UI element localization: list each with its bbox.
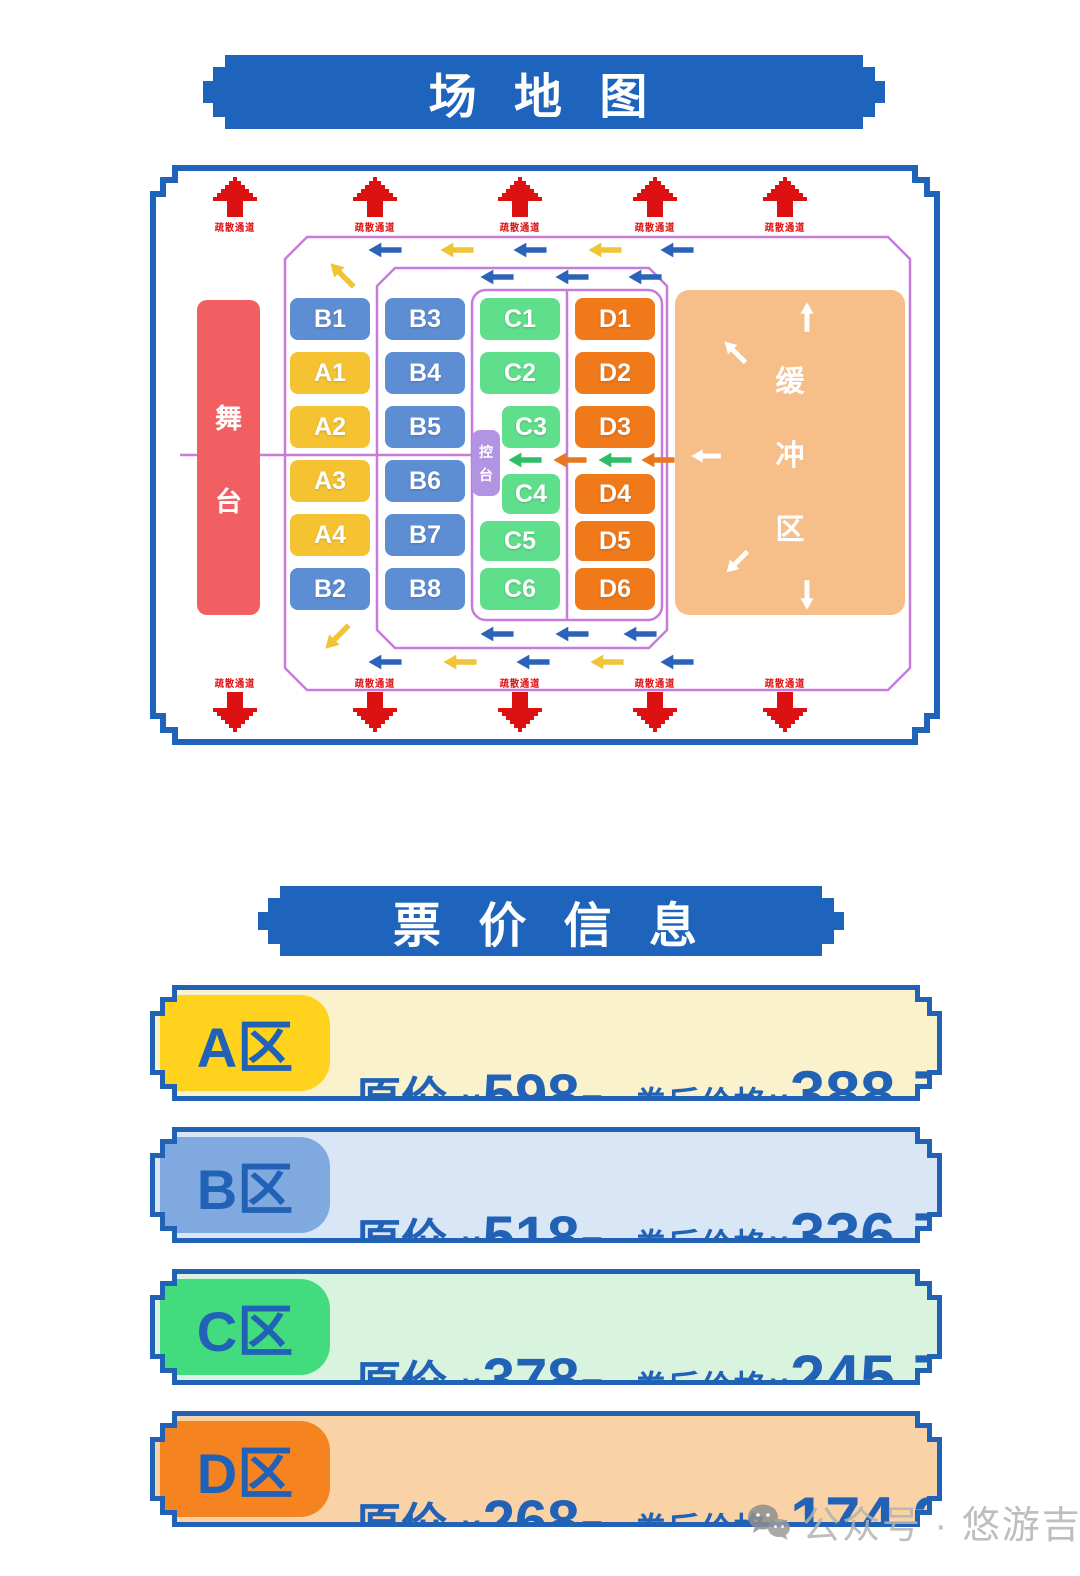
evacuation-exit-label: 疏散通道 [215, 219, 255, 234]
zone-a-chip: A区 [160, 995, 330, 1091]
yellow-flow-arrow-icon [440, 243, 473, 258]
blue-flow-arrow-icon [368, 655, 401, 670]
blue-flow-arrow-icon [513, 243, 546, 258]
evacuation-arrow-icon [633, 692, 677, 732]
discount-price-value: 336.7 [790, 1200, 948, 1272]
blue-flow-arrow-icon [660, 243, 693, 258]
seat-block-b1: B1 [290, 298, 370, 340]
evacuation-exit-up: 疏散通道 [475, 177, 565, 234]
seat-block-a3: A3 [290, 460, 370, 502]
buffer-zone-label-char: 区 [775, 506, 804, 548]
discount-price-label: 券后价格 [634, 1077, 766, 1125]
seat-block-d1: D1 [575, 298, 655, 340]
evacuation-exit-label: 疏散通道 [500, 675, 540, 690]
blue-flow-arrow-icon [480, 270, 513, 285]
unit-label: 元 [948, 1087, 973, 1123]
discount-price-label: 券后价格 [634, 1219, 766, 1267]
seat-block-c2: C2 [480, 352, 560, 394]
blue-flow-arrow-icon [368, 243, 401, 258]
price-row-c: C区 原价 ¥ 378 元 券后价格 ¥ 245.7 元 [150, 1269, 942, 1385]
evacuation-exit-down: 疏散通道 [740, 675, 830, 732]
blue-flow-arrow-icon [623, 627, 656, 642]
seat-block-c6: C6 [480, 568, 560, 610]
evacuation-exit-up: 疏散通道 [740, 177, 830, 234]
stage-label-char: 舞 [215, 397, 242, 436]
currency-symbol: ¥ [770, 1231, 787, 1265]
zone-c-label: C区 [197, 1287, 293, 1368]
seat-block-c5: C5 [480, 521, 560, 561]
seat-block-b7: B7 [385, 514, 465, 556]
yellow-flow-arrow-icon [320, 620, 354, 654]
original-price-label: 原价 [355, 1489, 447, 1555]
seat-block-d3: D3 [575, 406, 655, 448]
seat-block-b8: B8 [385, 568, 465, 610]
evacuation-exit-down: 疏散通道 [330, 675, 420, 732]
control-desk-label-char: 台 [479, 465, 493, 485]
evacuation-arrow-icon [353, 177, 397, 217]
seat-block-d5: D5 [575, 521, 655, 561]
seat-block-c1: C1 [480, 298, 560, 340]
evacuation-exit-up: 疏散通道 [610, 177, 700, 234]
seat-block-a2: A2 [290, 406, 370, 448]
venue-map-content: 舞台 B1A1A2A3A4B2B3B4B5B6B7B8C1C2C3C4C5C6D… [150, 165, 940, 745]
zone-b-label: B区 [197, 1145, 293, 1226]
seat-block-a1: A1 [290, 352, 370, 394]
seat-block-b3: B3 [385, 298, 465, 340]
evacuation-exit-up: 疏散通道 [190, 177, 280, 234]
control-desk-label-char: 控 [479, 442, 493, 462]
original-price-label: 原价 [355, 1205, 447, 1271]
seat-block-a4: A4 [290, 514, 370, 556]
seat-block-c4: C4 [502, 474, 560, 514]
evacuation-exit-up: 疏散通道 [330, 177, 420, 234]
evacuation-arrow-icon [213, 177, 257, 217]
evacuation-exit-label: 疏散通道 [765, 675, 805, 690]
yellow-flow-arrow-icon [590, 655, 623, 670]
seat-block-d6: D6 [575, 568, 655, 610]
seat-block-b2: B2 [290, 568, 370, 610]
original-price-label: 原价 [355, 1347, 447, 1413]
original-price-value: 268 [483, 1488, 580, 1555]
price-row-c-background: C区 原价 ¥ 378 元 券后价格 ¥ 245.7 元 [155, 1274, 937, 1380]
green-flow-arrow-icon [598, 453, 631, 468]
buffer-zone-block: 缓冲区 [675, 290, 905, 615]
evacuation-exit-down: 疏散通道 [610, 675, 700, 732]
price-row-a-background: A区 原价 ¥ 598 元 券后价格 ¥ 388.7 元 [155, 990, 937, 1096]
original-price-value: 598 [483, 1062, 580, 1129]
currency-symbol: ¥ [463, 1515, 480, 1549]
buffer-zone-label: 缓冲区 [675, 290, 905, 615]
currency-symbol: ¥ [463, 1373, 480, 1407]
evacuation-arrow-icon [353, 692, 397, 732]
stage-block: 舞台 [197, 300, 260, 615]
price-row-b-text: 原价 ¥ 518 元 券后价格 ¥ 336.7 元 [355, 1132, 929, 1238]
discount-price-label: 券后价格 [634, 1361, 766, 1409]
evacuation-arrow-icon [498, 177, 542, 217]
blue-flow-arrow-icon [516, 655, 549, 670]
watermark-text: 公众号 · 悠游吉林 [802, 1494, 1080, 1549]
discount-price-value: 245.7 [790, 1342, 948, 1414]
unit-label: 元 [579, 1371, 604, 1407]
currency-symbol: ¥ [463, 1089, 480, 1123]
unit-label: 元 [579, 1087, 604, 1123]
watermark: 公众号 · 悠游吉林 [746, 1494, 1080, 1549]
discount-price-value: 388.7 [790, 1058, 948, 1130]
seat-block-b4: B4 [385, 352, 465, 394]
evacuation-exit-label: 疏散通道 [355, 675, 395, 690]
blue-flow-arrow-icon [480, 627, 513, 642]
seat-block-b5: B5 [385, 406, 465, 448]
yellow-flow-arrow-icon [443, 655, 476, 670]
zone-c-chip: C区 [160, 1279, 330, 1375]
orange-flow-arrow-icon [553, 453, 586, 468]
original-price-value: 378 [483, 1346, 580, 1413]
evacuation-exit-label: 疏散通道 [215, 675, 255, 690]
evacuation-arrow-icon [763, 177, 807, 217]
evacuation-exit-label: 疏散通道 [635, 219, 675, 234]
venue-map-panel: 舞台 B1A1A2A3A4B2B3B4B5B6B7B8C1C2C3C4C5C6D… [150, 165, 940, 745]
seat-block-d4: D4 [575, 474, 655, 514]
zone-d-chip: D区 [160, 1421, 330, 1517]
zone-a-label: A区 [197, 1003, 293, 1084]
price-row-a: A区 原价 ¥ 598 元 券后价格 ¥ 388.7 元 [150, 985, 942, 1101]
blue-flow-arrow-icon [555, 627, 588, 642]
ticket-price-banner: 票 价 信 息 [258, 886, 844, 956]
evacuation-arrow-icon [213, 692, 257, 732]
evacuation-exit-down: 疏散通道 [190, 675, 280, 732]
unit-label: 元 [579, 1229, 604, 1265]
zone-b-chip: B区 [160, 1137, 330, 1233]
seat-block-d2: D2 [575, 352, 655, 394]
price-row-a-text: 原价 ¥ 598 元 券后价格 ¥ 388.7 元 [355, 990, 929, 1096]
currency-symbol: ¥ [770, 1089, 787, 1123]
original-price-label: 原价 [355, 1063, 447, 1129]
evacuation-exit-label: 疏散通道 [635, 675, 675, 690]
unit-label: 元 [579, 1513, 604, 1549]
evacuation-exit-label: 疏散通道 [355, 219, 395, 234]
control-desk-block: 控台 [472, 430, 500, 496]
blue-flow-arrow-icon [555, 270, 588, 285]
currency-symbol: ¥ [463, 1231, 480, 1265]
evacuation-exit-label: 疏散通道 [500, 219, 540, 234]
price-row-c-text: 原价 ¥ 378 元 券后价格 ¥ 245.7 元 [355, 1274, 929, 1380]
blue-flow-arrow-icon [628, 270, 661, 285]
wechat-icon [746, 1502, 792, 1542]
venue-map-title: 场 地 图 [429, 57, 660, 127]
buffer-zone-label-char: 冲 [775, 432, 804, 474]
evacuation-exit-label: 疏散通道 [765, 219, 805, 234]
yellow-flow-arrow-icon [588, 243, 621, 258]
green-flow-arrow-icon [508, 453, 541, 468]
evacuation-exit-down: 疏散通道 [475, 675, 565, 732]
evacuation-arrow-icon [633, 177, 677, 217]
zone-d-label: D区 [197, 1429, 293, 1510]
venue-map-banner: 场 地 图 [203, 55, 885, 129]
price-row-b: B区 原价 ¥ 518 元 券后价格 ¥ 336.7 元 [150, 1127, 942, 1243]
stage-label-char: 台 [215, 480, 242, 519]
evacuation-arrow-icon [763, 692, 807, 732]
evacuation-arrow-icon [498, 692, 542, 732]
unit-label: 元 [948, 1371, 973, 1407]
blue-flow-arrow-icon [660, 655, 693, 670]
currency-symbol: ¥ [770, 1373, 787, 1407]
price-row-b-background: B区 原价 ¥ 518 元 券后价格 ¥ 336.7 元 [155, 1132, 937, 1238]
seat-block-c3: C3 [502, 406, 560, 448]
seat-block-b6: B6 [385, 460, 465, 502]
ticket-price-title: 票 价 信 息 [393, 886, 709, 956]
buffer-zone-label-char: 缓 [775, 358, 804, 400]
yellow-flow-arrow-icon [325, 258, 359, 292]
orange-flow-arrow-icon [641, 453, 674, 468]
unit-label: 元 [948, 1229, 973, 1265]
original-price-value: 518 [483, 1204, 580, 1271]
